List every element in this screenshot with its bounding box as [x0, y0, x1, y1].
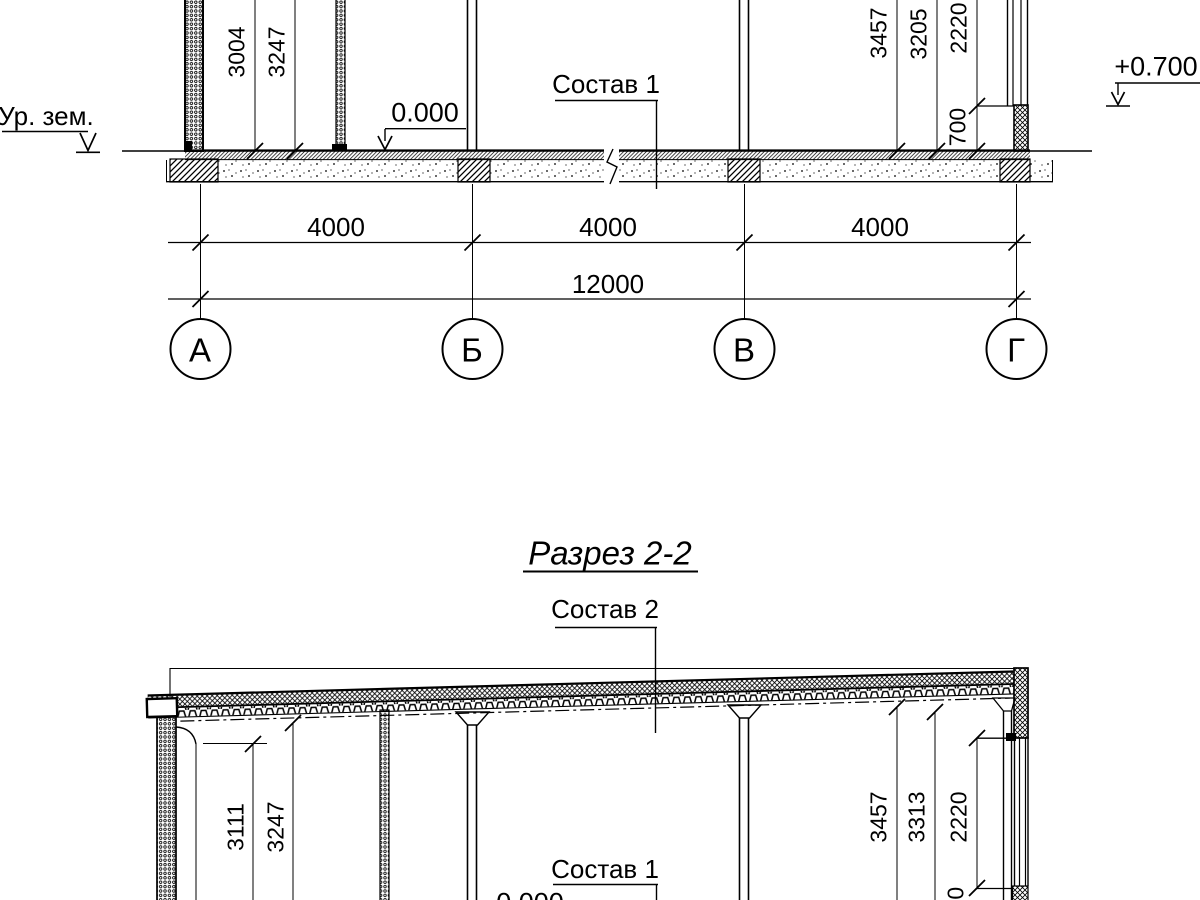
s2-zero-elevation-label: 0.000	[496, 890, 564, 900]
s1-underlay-1	[218, 161, 458, 182]
s2-dim-3457: 3457	[868, 791, 891, 842]
s2-roof	[147, 671, 1014, 722]
s2-dim-3247: 3247	[265, 801, 288, 852]
s2-floor-composition-leader	[553, 884, 658, 900]
s2-dim-3313: 3313	[906, 791, 929, 842]
s1-found-block-v	[728, 159, 760, 182]
s2-floor-composition-label: Состав 1	[551, 856, 659, 882]
s1-dim-700: 700	[947, 108, 970, 146]
s2-eave-box	[147, 698, 177, 717]
s2-roof-composition-label: Состав 2	[551, 596, 659, 622]
drawing-sheet: Ур. зем. 0.000 Состав 1 +0.700 3004 3247…	[0, 0, 1200, 900]
s1-right-wall	[1014, 105, 1028, 151]
s1-axis-bubbles	[171, 319, 1047, 379]
s2-roof-composition-leader	[555, 627, 657, 733]
drawing-linework	[0, 0, 1200, 900]
s1-parapet-mark	[1106, 83, 1200, 106]
s2-dim-3111: 3111	[225, 803, 248, 851]
s1-span-dim-2: 4000	[579, 214, 637, 240]
s1-found-block-a	[170, 159, 218, 182]
s1-column-v	[740, 0, 749, 150]
axis-label-a: А	[189, 334, 211, 367]
s1-partition	[336, 0, 345, 145]
s1-ground-level-label: Ур. зем.	[0, 103, 94, 129]
s2-partition	[380, 710, 389, 900]
s2-right-glazing	[1015, 737, 1029, 886]
s1-underlay-3	[760, 161, 1000, 182]
axis-label-v: В	[733, 334, 755, 367]
s1-span-dim-1: 4000	[307, 214, 365, 240]
axis-label-g: Г	[1007, 334, 1025, 367]
s1-dim-3247: 3247	[266, 26, 289, 77]
s1-found-block-g	[1000, 159, 1030, 182]
s1-break-symbol	[604, 148, 619, 185]
s2-column-g	[993, 698, 1015, 900]
s1-span-dim-3: 4000	[851, 214, 909, 240]
s1-dim-2220: 2220	[948, 2, 971, 53]
s2-dim-700-clipped: 700	[945, 887, 968, 900]
s2-dim-2220: 2220	[948, 791, 971, 842]
s2-parapet	[1014, 668, 1028, 738]
s2-title: Разрез 2-2	[528, 537, 692, 570]
s1-floor-composition-label: Состав 1	[552, 71, 660, 97]
s1-dim-3205: 3205	[908, 8, 931, 59]
s1-parapet-elevation-label: +0.700	[1114, 54, 1197, 81]
s1-dim-3457: 3457	[868, 7, 891, 58]
s1-column-b	[468, 0, 477, 150]
s1-underlay-4	[1030, 161, 1052, 182]
s2-right-wall-lower	[1013, 886, 1029, 900]
axis-label-b: Б	[461, 334, 483, 367]
s1-found-block-b	[458, 159, 490, 182]
s1-right-glazing	[1008, 0, 1028, 106]
s1-ground-mark	[2, 132, 100, 153]
s2-haunch	[176, 727, 196, 744]
s1-zero-elevation-label: 0.000	[391, 100, 459, 127]
s1-total-dim: 12000	[572, 271, 644, 297]
section-1-dimensions	[2, 0, 1200, 379]
s2-column-b	[456, 712, 489, 900]
s1-zero-mark	[378, 129, 466, 150]
s2-column-v	[728, 705, 761, 900]
s1-left-wall	[185, 0, 203, 151]
s1-dim-3004: 3004	[226, 26, 249, 77]
s2-left-wall	[157, 714, 176, 900]
